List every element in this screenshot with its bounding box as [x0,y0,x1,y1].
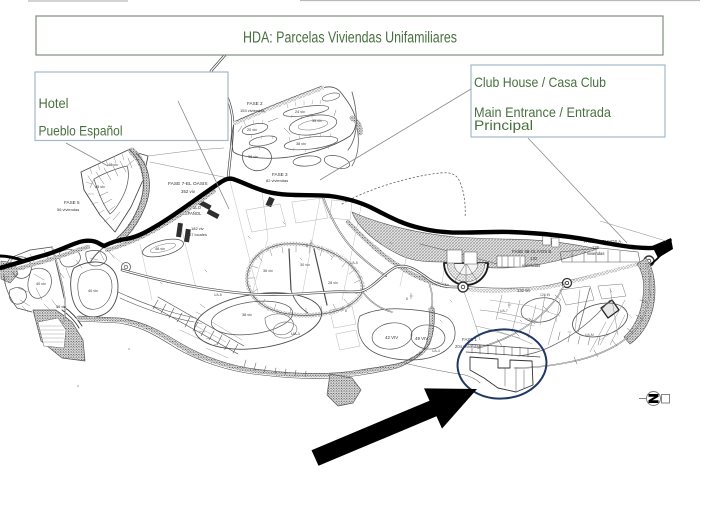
svg-text:36 viv: 36 viv [248,155,258,159]
svg-text:UA-5: UA-5 [350,261,358,265]
svg-text:49 VIV: 49 VIV [415,336,428,341]
svg-text:viviendas: viviendas [587,251,604,256]
svg-text:UA-8: UA-8 [214,293,222,297]
svg-text:42 VIV: 42 VIV [385,335,398,340]
svg-text:UA-7: UA-7 [500,309,508,313]
svg-text:56 viviendas: 56 viviendas [57,207,79,212]
svg-text:38 viv: 38 viv [296,142,306,146]
svg-text:24 viv: 24 viv [295,110,305,114]
svg-text:FASE 2: FASE 2 [247,101,263,106]
svg-text:46 viv: 46 viv [155,247,165,251]
svg-text:Club House / Casa Club: Club House / Casa Club [474,74,606,90]
svg-text:126: 126 [592,245,600,250]
svg-text:FASE 5: FASE 5 [64,200,80,205]
svg-text:82 viviendas: 82 viviendas [266,178,288,183]
svg-text:UA-1: UA-1 [291,331,301,336]
svg-text:40 viv: 40 viv [36,282,46,286]
svg-text:352 viv: 352 viv [181,189,196,194]
svg-text:153 viviendas: 153 viviendas [240,108,264,113]
svg-text:28 viv: 28 viv [328,281,338,285]
svg-text:126 IN: 126 IN [540,293,551,297]
svg-text:45 viv: 45 viv [95,185,105,189]
svg-text:48 viv: 48 viv [108,163,118,167]
svg-text:47 locales: 47 locales [189,232,207,237]
svg-text:182 viv: 182 viv [191,226,204,231]
svg-text:FASE 7-EL OASIS: FASE 7-EL OASIS [168,181,208,187]
svg-text:38 viv: 38 viv [242,313,252,317]
svg-text:FASE 68-OLIVOS B: FASE 68-OLIVOS B [512,249,551,254]
svg-text:36 viv: 36 viv [263,269,273,273]
svg-text:FASE 3: FASE 3 [272,172,288,177]
svg-text:Hotel: Hotel [39,95,69,111]
svg-text:UA-4: UA-4 [432,349,440,353]
svg-text:HDA: Parcelas Viviendas Unifam: HDA: Parcelas Viviendas Unifamiliares [243,30,457,47]
svg-text:8: 8 [406,297,408,301]
svg-text:132 viv: 132 viv [517,288,531,293]
svg-text:132: 132 [530,256,538,261]
svg-text:Pueblo Español: Pueblo Español [39,123,123,139]
svg-text:35 viv: 35 viv [312,119,322,123]
svg-text:Principal: Principal [474,117,533,133]
svg-text:20 viv: 20 viv [247,128,257,132]
svg-text:40 viv: 40 viv [88,289,98,293]
svg-text:8: 8 [345,309,347,313]
svg-text:8: 8 [306,244,308,248]
svg-text:204 viviendas: 204 viviendas [455,344,481,349]
svg-text:30 viv: 30 viv [300,263,310,267]
svg-text:UA-M: UA-M [585,333,594,337]
svg-text:viviendas: viviendas [522,263,541,268]
svg-text:36 viv: 36 viv [56,305,66,309]
